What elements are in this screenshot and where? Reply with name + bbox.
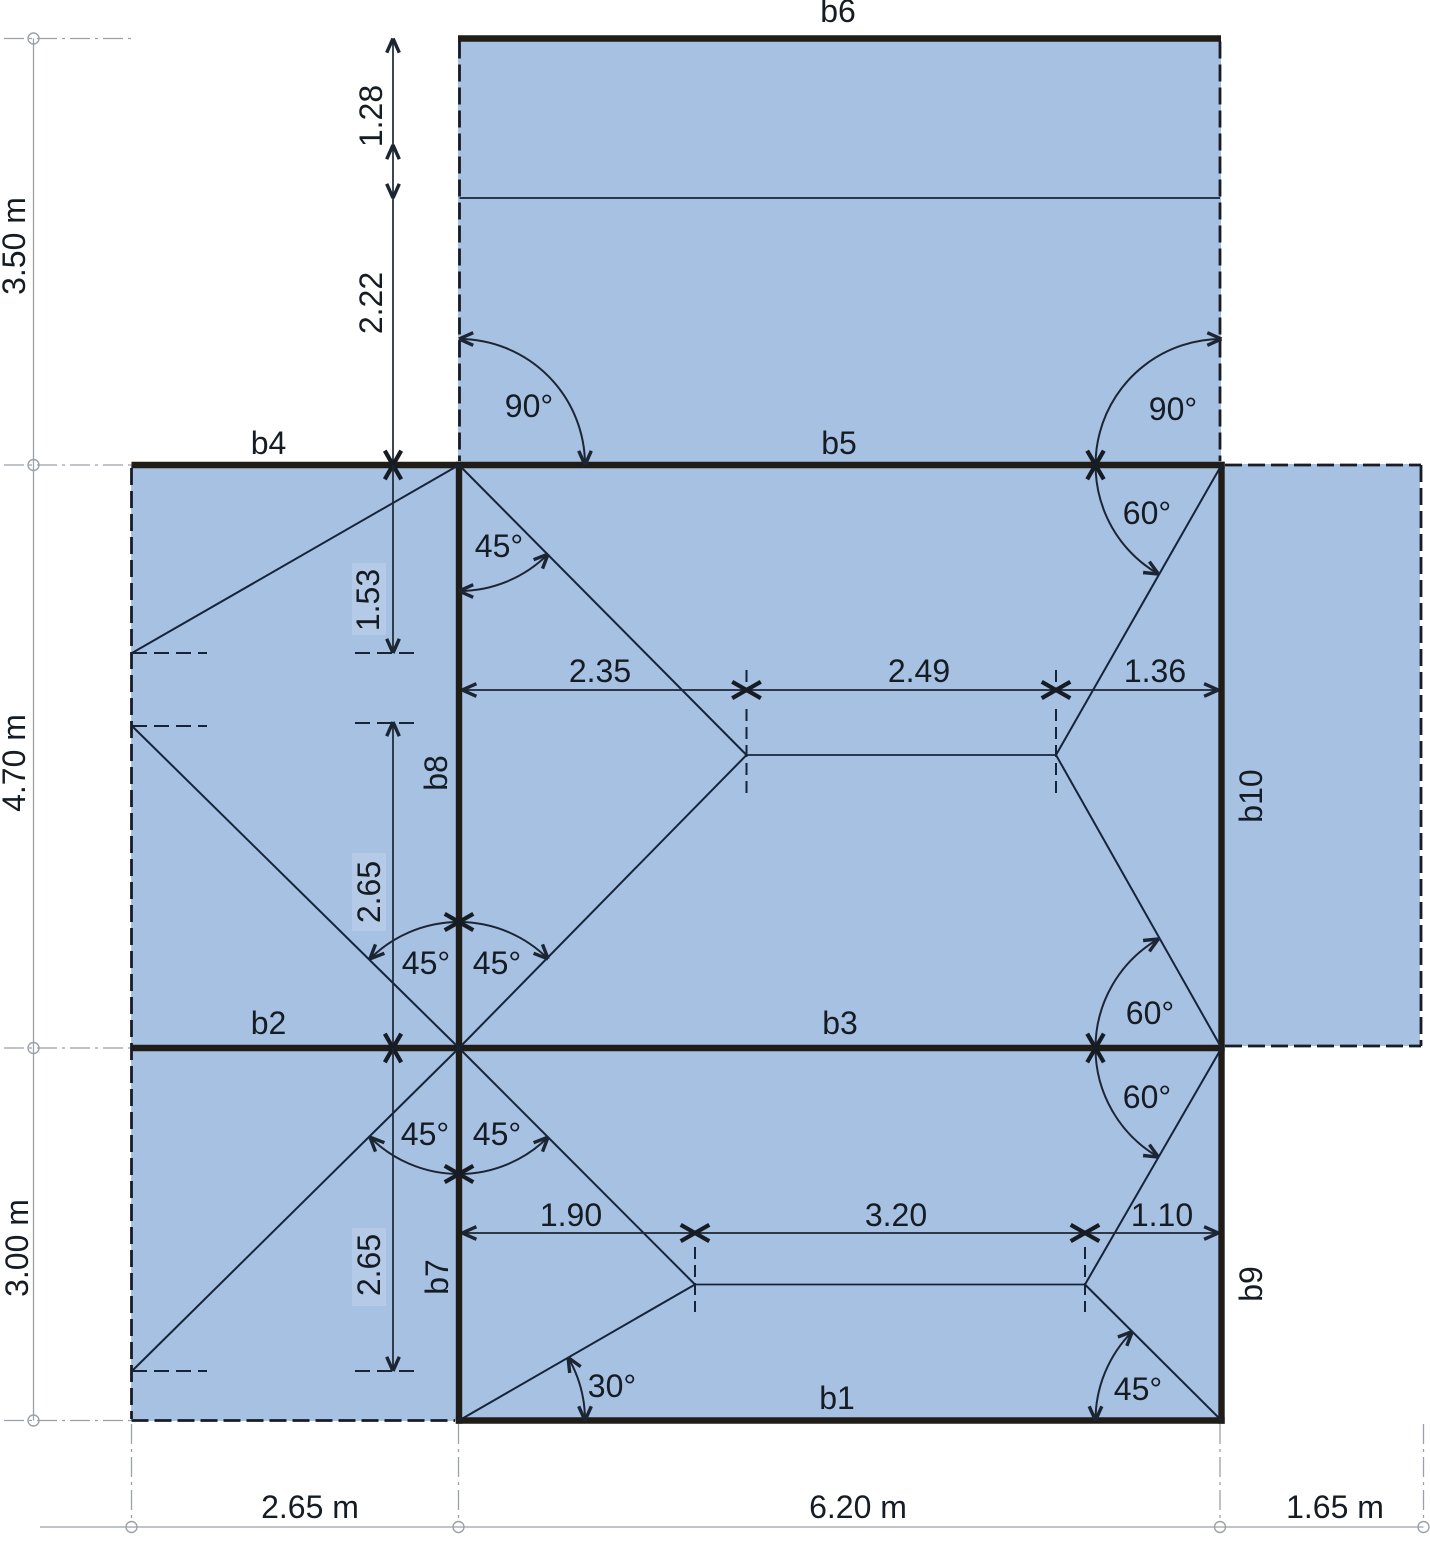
svg-text:90°: 90° (1149, 391, 1197, 427)
svg-text:b6: b6 (820, 0, 856, 29)
svg-text:b9: b9 (1233, 1266, 1269, 1302)
svg-text:90°: 90° (505, 388, 553, 424)
svg-text:45°: 45° (402, 945, 450, 981)
svg-text:2.49: 2.49 (888, 653, 950, 689)
svg-text:1.10: 1.10 (1131, 1197, 1193, 1233)
svg-text:60°: 60° (1126, 995, 1174, 1031)
svg-text:b5: b5 (821, 425, 857, 461)
svg-text:2.65 m: 2.65 m (261, 1489, 359, 1525)
svg-text:2.65: 2.65 (351, 1234, 387, 1296)
svg-text:6.20 m: 6.20 m (809, 1489, 907, 1525)
svg-text:45°: 45° (473, 945, 521, 981)
svg-text:45°: 45° (401, 1116, 449, 1152)
svg-text:2.35: 2.35 (569, 653, 631, 689)
svg-text:30°: 30° (588, 1368, 636, 1404)
svg-text:3.50 m: 3.50 m (0, 197, 32, 295)
svg-text:2.22: 2.22 (353, 272, 389, 334)
svg-text:1.28: 1.28 (353, 85, 389, 147)
svg-text:b8: b8 (418, 755, 454, 791)
svg-text:4.70 m: 4.70 m (0, 714, 32, 812)
svg-text:b3: b3 (822, 1005, 858, 1041)
svg-text:b7: b7 (419, 1259, 455, 1295)
svg-text:b1: b1 (819, 1380, 855, 1416)
svg-text:1.90: 1.90 (540, 1197, 602, 1233)
svg-text:b2: b2 (251, 1005, 287, 1041)
svg-text:1.65 m: 1.65 m (1286, 1489, 1384, 1525)
svg-text:1.36: 1.36 (1124, 653, 1186, 689)
svg-text:b10: b10 (1233, 769, 1269, 822)
svg-text:b4: b4 (251, 425, 287, 461)
svg-text:60°: 60° (1123, 495, 1171, 531)
svg-text:2.65: 2.65 (351, 861, 387, 923)
svg-text:60°: 60° (1123, 1079, 1171, 1115)
svg-text:45°: 45° (475, 528, 523, 564)
svg-text:1.53: 1.53 (350, 569, 386, 631)
svg-text:45°: 45° (473, 1116, 521, 1152)
svg-text:3.00 m: 3.00 m (0, 1199, 35, 1297)
svg-text:3.20: 3.20 (865, 1197, 927, 1233)
svg-text:45°: 45° (1114, 1371, 1162, 1407)
